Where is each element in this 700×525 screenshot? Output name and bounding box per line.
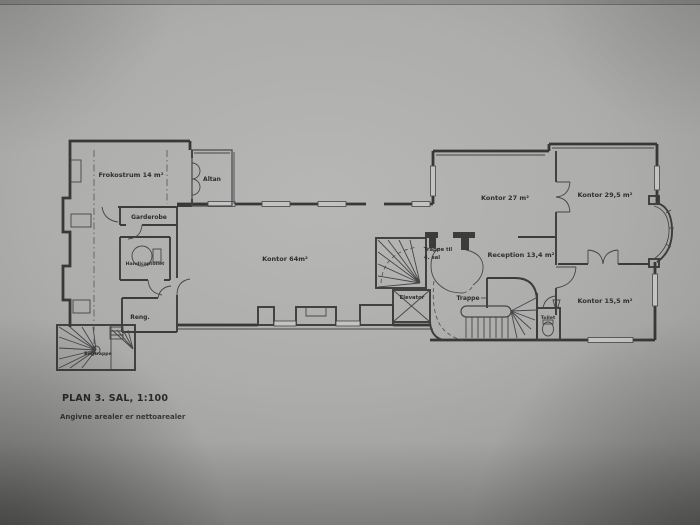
- room-label-kontor295: Kontor 29,5 m²: [578, 191, 633, 199]
- chimney-1: [71, 214, 91, 227]
- left-wing-outer-wall: [63, 141, 190, 327]
- window-5: [274, 321, 296, 326]
- room-label-trappe-til-2: 4. sal: [424, 255, 440, 261]
- window-bay-pier-1: [258, 307, 274, 325]
- pier-notch: [306, 307, 326, 316]
- toilet-door: [543, 296, 556, 308]
- room-label-frokostrum: Frokostrum 14 m²: [98, 171, 163, 179]
- floor-plan-drawing: Frokostrum 14 m² Altan Garderobe Handica…: [0, 0, 700, 525]
- plan-details: [59, 148, 674, 370]
- room-label-kontor27: Kontor 27 m²: [481, 194, 529, 202]
- window-8: [655, 166, 660, 190]
- bay-window-outer: [657, 203, 672, 262]
- frokostrum-niche: [71, 160, 81, 182]
- room-label-handicaptoilet: Handicaptoilet: [126, 261, 166, 267]
- handicap-toilet-cistern: [153, 249, 161, 262]
- right-wing-top-wall: [433, 144, 657, 151]
- frokostrum-door: [102, 207, 118, 222]
- main-stair-newel: [461, 306, 511, 317]
- kontor27-kontor295-double-door: [556, 182, 570, 212]
- bay-window-inner: [654, 206, 674, 259]
- interior-walls: [57, 150, 672, 370]
- room-label-reng: Reng.: [130, 314, 150, 321]
- room-label-trappe-til-1: Trappe til: [424, 247, 453, 253]
- stair-void-dashed: [433, 281, 473, 341]
- kontor295-kontor155-double-door: [588, 250, 618, 264]
- room-label-toilet: Toilet: [541, 315, 556, 321]
- window-3: [318, 202, 346, 207]
- window-10: [588, 338, 633, 343]
- chimney-2: [73, 300, 90, 313]
- room-label-reception: Reception 13,4 m²: [488, 251, 555, 259]
- corridor-door: [177, 279, 190, 295]
- altan-french-doors: [192, 163, 200, 195]
- room-label-altan: Altan: [203, 176, 221, 183]
- room-label-kontor64: Kontor 64m²: [262, 255, 308, 263]
- main-stair-walls: [430, 278, 537, 340]
- handicaptoilet-walls: [120, 237, 170, 280]
- window-bay-pier-3: [360, 305, 393, 325]
- photo-background: Frokostrum 14 m² Altan Garderobe Handica…: [0, 0, 700, 525]
- window-6: [336, 321, 360, 326]
- room-label-kontor155: Kontor 15,5 m²: [578, 297, 633, 305]
- pillar-4: [461, 236, 469, 250]
- main-stair-treads: [466, 317, 508, 338]
- bagtrappe-treads: [59, 327, 96, 368]
- drawing-annotations: PLAN 3. SAL, 1:100 Angivne arealer er ne…: [60, 393, 186, 421]
- window-7: [431, 166, 436, 196]
- window-4: [412, 202, 430, 207]
- plan-note: Angivne arealer er nettoarealer: [60, 413, 186, 421]
- dashed-lines: [94, 150, 473, 344]
- plan-title: PLAN 3. SAL, 1:100: [62, 393, 168, 404]
- upper-stair-treads: [378, 240, 420, 287]
- room-label-trappe: Trappe: [456, 295, 479, 302]
- window-9: [653, 274, 658, 306]
- room-label-elevator: Elevator: [400, 295, 425, 301]
- reception-kontor155-door: [556, 267, 576, 288]
- altan-jamb-walls: [177, 150, 192, 206]
- main-stair-winders: [511, 298, 537, 338]
- window-2: [262, 202, 290, 207]
- room-label-bagtrappe: Bagtrappe: [84, 351, 112, 357]
- reng-door: [158, 286, 171, 298]
- room-label-garderobe: Garderobe: [131, 214, 167, 221]
